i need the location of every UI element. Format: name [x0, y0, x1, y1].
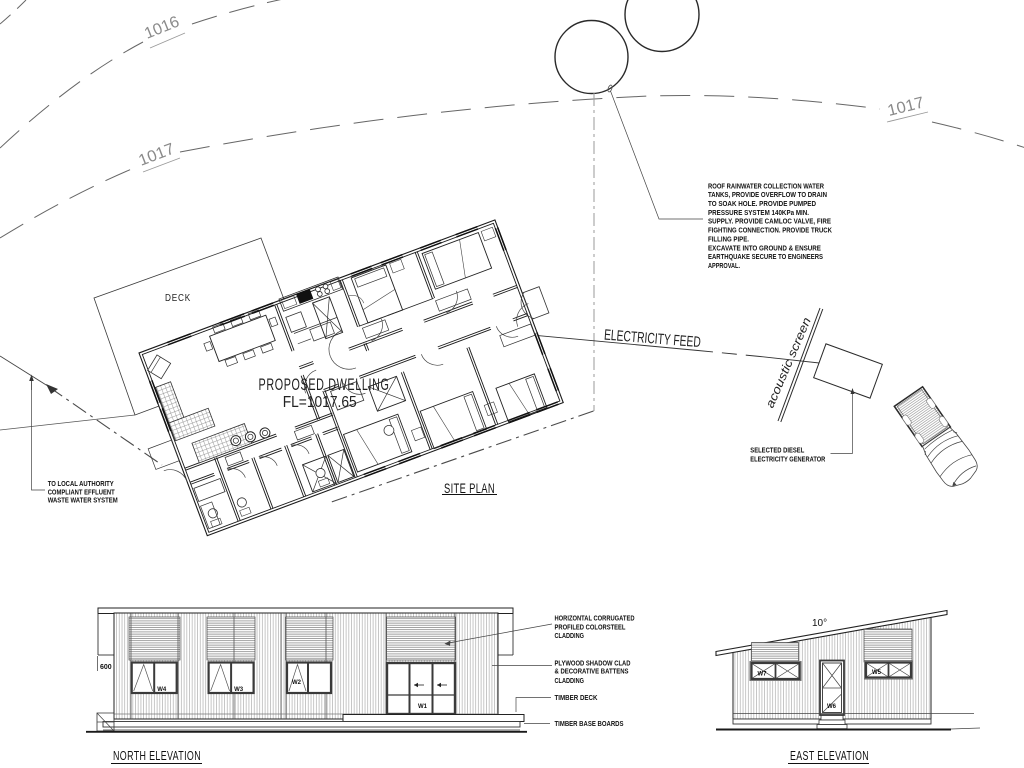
svg-text:PRESSURE SYSTEM 140KPa MIN.: PRESSURE SYSTEM 140KPa MIN. — [708, 210, 809, 217]
svg-text:CLADDING: CLADDING — [555, 678, 585, 685]
svg-text:W6: W6 — [827, 704, 837, 710]
svg-text:TO LOCAL AUTHORITY: TO LOCAL AUTHORITY — [48, 481, 114, 488]
svg-text:FILLING PIPE.: FILLING PIPE. — [708, 236, 749, 243]
svg-text:CLADDING: CLADDING — [555, 633, 585, 640]
svg-text:PROFILED COLORSTEEL: PROFILED COLORSTEEL — [555, 624, 627, 631]
svg-text:W5: W5 — [872, 670, 882, 676]
svg-text:1016: 1016 — [142, 13, 182, 42]
svg-text:ELECTRICITY FEED: ELECTRICITY FEED — [603, 327, 701, 352]
svg-text:TO SOAK HOLE. PROVIDE PUMPED: TO SOAK HOLE. PROVIDE PUMPED — [708, 201, 816, 208]
svg-text:TANKS, PROVIDE OVERFLOW TO DRA: TANKS, PROVIDE OVERFLOW TO DRAIN — [708, 192, 827, 199]
svg-text:PLYWOOD SHADOW CLAD: PLYWOOD SHADOW CLAD — [555, 660, 631, 667]
svg-text:PROPOSED DWELLING: PROPOSED DWELLING — [259, 375, 390, 394]
svg-text:W2: W2 — [292, 680, 302, 686]
svg-text:SELECTED DIESEL: SELECTED DIESEL — [750, 447, 805, 454]
svg-text:W4: W4 — [157, 687, 167, 693]
svg-text:HORIZONTAL CORRUGATED: HORIZONTAL CORRUGATED — [555, 615, 635, 622]
svg-text:FIGHTING CONNECTION. PROVIDE T: FIGHTING CONNECTION. PROVIDE TRUCK — [708, 228, 832, 235]
svg-text:EXCAVATE INTO GROUND & ENSURE: EXCAVATE INTO GROUND & ENSURE — [708, 245, 821, 252]
svg-text:600: 600 — [100, 664, 112, 671]
svg-text:FL=1017.65: FL=1017.65 — [283, 394, 357, 411]
svg-text:SUPPLY. PROVIDE CAMLOC VALVE,: SUPPLY. PROVIDE CAMLOC VALVE, FIRE — [708, 219, 831, 226]
svg-text:W3: W3 — [234, 687, 244, 693]
svg-text:W1: W1 — [418, 704, 428, 710]
svg-text:1017: 1017 — [886, 94, 926, 119]
svg-text:NORTH ELEVATION: NORTH ELEVATION — [113, 749, 201, 763]
svg-text:acoustic screen: acoustic screen — [763, 315, 814, 410]
svg-text:& DECORATIVE BATTENS: & DECORATIVE BATTENS — [555, 669, 629, 676]
svg-text:WASTE WATER SYSTEM: WASTE WATER SYSTEM — [48, 497, 118, 504]
svg-text:EARTHQUAKE SECURE TO ENGINEERS: EARTHQUAKE SECURE TO ENGINEERS — [708, 254, 823, 261]
svg-text:ROOF RAINWATER COLLECTION WATE: ROOF RAINWATER COLLECTION WATER — [708, 183, 824, 190]
svg-text:1017: 1017 — [136, 141, 177, 170]
svg-text:10°: 10° — [812, 618, 827, 629]
svg-text:APPROVAL.: APPROVAL. — [708, 263, 740, 270]
svg-text:ELECTRICITY GENERATOR: ELECTRICITY GENERATOR — [750, 457, 825, 464]
svg-text:SITE PLAN: SITE PLAN — [444, 481, 495, 496]
svg-text:COMPLIANT EFFLUENT: COMPLIANT EFFLUENT — [48, 489, 116, 496]
svg-text:TIMBER BASE BOARDS: TIMBER BASE BOARDS — [555, 721, 624, 728]
svg-text:W7: W7 — [758, 672, 768, 678]
svg-text:TIMBER DECK: TIMBER DECK — [555, 695, 598, 702]
svg-text:DECK: DECK — [165, 292, 191, 304]
svg-text:EAST ELEVATION: EAST ELEVATION — [790, 749, 869, 763]
